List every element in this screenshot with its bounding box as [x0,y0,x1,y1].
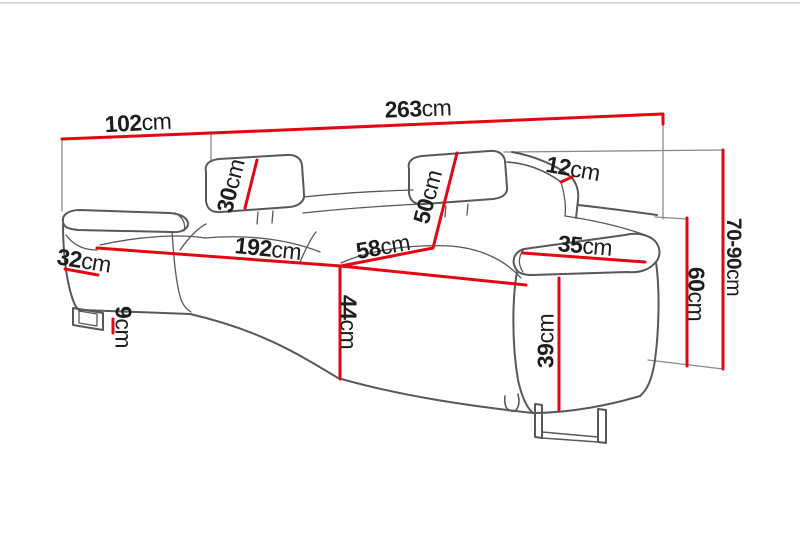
dim-label-seat-height: 44cm [335,295,362,349]
dim-unit: cm [336,319,362,349]
dim-label-total-height-range: 70-90cm [721,218,745,296]
dim-unit: cm [568,155,602,186]
dim-unit: cm [421,94,452,121]
dim-label-right-armrest-width: 35cm [557,230,613,262]
dim-unit: cm [378,229,412,260]
dim-value: 44 [336,295,362,320]
dimension-lines [62,114,723,410]
dim-unit: cm [80,247,113,277]
dim-unit: cm [270,236,302,265]
dim-label-leg-height: 9cm [110,306,137,348]
dim-line-seat-front-edge [341,266,526,285]
dim-value: 35 [557,230,584,258]
dim-value: 263 [384,95,422,122]
dim-label-total-depth: 102cm [104,108,172,138]
dim-unit: cm [684,291,710,321]
dim-unit: cm [141,108,172,136]
diagram-canvas: 102cm 263cm 12cm 30cm 50cm 192cm 58cm 35… [0,0,800,533]
dim-unit: cm [581,232,613,260]
dim-unit: cm [533,314,559,344]
dim-unit: cm [217,156,249,191]
dim-value: 70-90 [722,218,745,269]
dim-label-armrest-side-height: 60cm [683,267,710,321]
dim-label-total-width: 263cm [384,94,451,123]
dim-unit: cm [111,318,137,348]
dim-unit: cm [722,269,745,296]
dim-value: 192 [234,232,273,262]
dim-value: 102 [104,109,142,137]
dim-value: 60 [684,267,710,292]
dim-label-armrest-front-height: 39cm [533,314,560,368]
dim-value: 9 [111,306,137,318]
sofa-diagram [0,0,800,533]
dim-value: 39 [533,344,559,369]
